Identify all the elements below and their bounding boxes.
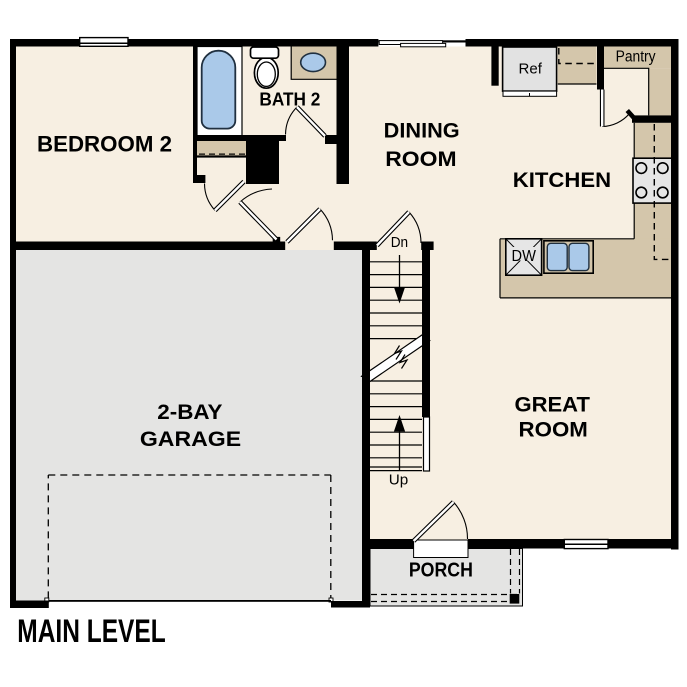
svg-text:BATH 2: BATH 2 [259,90,320,110]
svg-text:KITCHEN: KITCHEN [513,168,611,192]
svg-text:ROOM: ROOM [385,148,456,171]
svg-text:MAIN LEVEL: MAIN LEVEL [17,613,165,649]
svg-text:DW: DW [512,248,537,265]
svg-text:DINING: DINING [384,119,460,142]
svg-text:Pantry: Pantry [616,49,656,66]
svg-text:GARAGE: GARAGE [140,427,241,451]
svg-text:BEDROOM 2: BEDROOM 2 [37,131,172,156]
svg-text:GREAT: GREAT [515,394,591,417]
svg-text:Dn: Dn [391,234,408,251]
svg-text:Up: Up [389,472,409,489]
svg-text:PORCH: PORCH [409,559,473,581]
svg-text:Ref: Ref [519,61,543,78]
svg-text:ROOM: ROOM [519,418,588,441]
svg-text:2-BAY: 2-BAY [157,400,222,424]
